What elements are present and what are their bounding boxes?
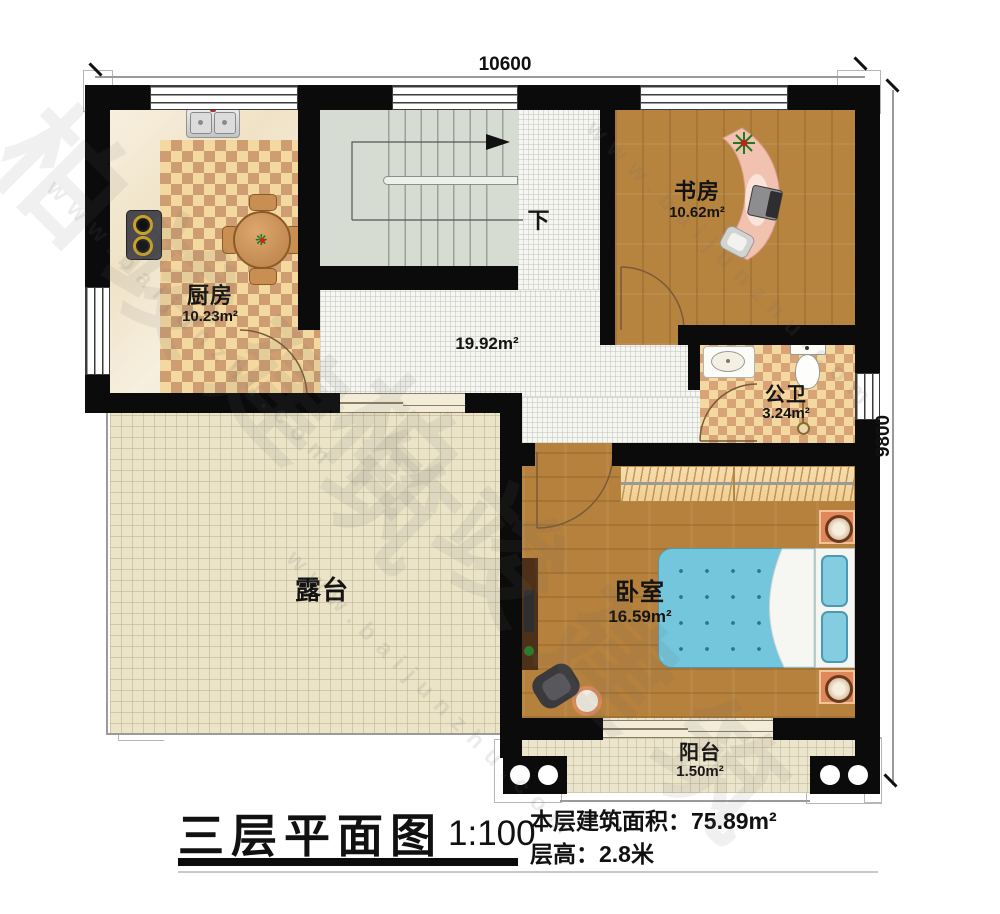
- wall-segment: [600, 325, 615, 345]
- wall-segment: [518, 85, 640, 110]
- column: [510, 765, 530, 785]
- pillow: [821, 611, 848, 663]
- plant-icon: [524, 646, 534, 656]
- right-dimension-label: 9800: [873, 404, 895, 468]
- floor-drain: [797, 422, 810, 435]
- floor-plan: ❋: [0, 0, 1000, 914]
- balcony-parapet: [560, 800, 810, 802]
- title-underline-thin: [178, 871, 878, 873]
- wall-segment: [688, 345, 700, 390]
- terrace-label: 露台: [262, 576, 382, 605]
- toilet-button: [805, 346, 809, 350]
- lamp-icon: [825, 675, 853, 703]
- sink-drain: [222, 120, 227, 125]
- floor-area-row: 本层建筑面积：75.89m²: [530, 805, 777, 838]
- hallway-floor: [518, 110, 600, 290]
- wall-segment: [500, 718, 603, 740]
- dimension-tick: [883, 773, 897, 787]
- room-name: 露台: [262, 576, 382, 605]
- wall-segment: [678, 325, 855, 345]
- room-name: 书房: [637, 180, 757, 205]
- window: [392, 85, 518, 110]
- room-name: 阳台: [640, 742, 760, 764]
- room-area: 1.50m²: [640, 764, 760, 781]
- dining-chair: [249, 194, 277, 211]
- room-area: 3.24m²: [726, 406, 846, 423]
- column: [820, 765, 840, 785]
- bedroom-label: 卧室 16.59m²: [580, 580, 700, 626]
- wall-segment: [612, 443, 855, 466]
- floor-height-value: 2.8米: [599, 841, 654, 867]
- stairs-direction-label: 下: [524, 209, 554, 234]
- floor-area-value: 75.89m²: [691, 808, 777, 834]
- wall-segment: [855, 420, 880, 758]
- floor-height-label: 层高：: [530, 841, 599, 867]
- monitor-icon: [524, 590, 534, 632]
- pillow: [821, 555, 848, 607]
- wall-segment: [85, 85, 110, 287]
- balcony-sliding-door: [603, 720, 773, 738]
- basin-drain: [726, 359, 730, 363]
- wall-segment: [600, 110, 615, 345]
- wall-segment: [855, 85, 880, 373]
- floor-height-row: 层高：2.8米: [530, 838, 777, 871]
- gas-stove: [126, 210, 162, 260]
- lamp-icon: [825, 515, 853, 543]
- bathroom-label: 公卫 3.24m²: [726, 384, 846, 423]
- wall-segment: [85, 393, 340, 413]
- wall-segment: [298, 85, 392, 110]
- wall-segment: [298, 110, 320, 268]
- room-area: 19.92m²: [427, 334, 547, 353]
- stool: [572, 686, 602, 716]
- column: [538, 765, 558, 785]
- dining-chair: [249, 268, 277, 285]
- terrace-sliding-door: [340, 393, 465, 413]
- stairs-down-text: 下: [524, 209, 554, 234]
- wardrobe-divider: [733, 467, 735, 501]
- title-underline: [178, 858, 518, 866]
- nightstand: [819, 670, 855, 704]
- stair-treads-upper: [388, 110, 518, 176]
- study-label: 书房 10.62m²: [637, 180, 757, 221]
- stair-rail: [383, 176, 518, 185]
- room-area: 10.62m²: [637, 205, 757, 222]
- room-area: 16.59m²: [580, 607, 700, 626]
- window: [85, 287, 110, 375]
- stove-burner: [133, 215, 153, 235]
- terrace-parapet: [106, 413, 108, 735]
- room-area: 10.23m²: [150, 309, 270, 326]
- nightstand: [819, 510, 855, 544]
- balcony-pillar: [810, 756, 880, 794]
- wardrobe-rail: [621, 482, 854, 485]
- room-name: 卧室: [580, 580, 700, 607]
- wall-segment: [305, 266, 518, 290]
- room-name: 公卫: [726, 384, 846, 406]
- table-flower-icon: [260, 238, 265, 243]
- terrace-parapet: [106, 733, 507, 735]
- terrace-floor: [110, 413, 505, 735]
- top-dimension-label: 10600: [455, 54, 555, 76]
- dimension-tick: [853, 56, 867, 70]
- window: [640, 85, 788, 110]
- drawing-scale: 1:100: [448, 814, 536, 854]
- room-name: 厨房: [150, 284, 270, 309]
- stove-burner: [133, 236, 153, 256]
- top-dimension-line: [95, 76, 865, 78]
- wall-segment: [773, 718, 880, 740]
- hallway-area-label: 19.92m²: [427, 334, 547, 353]
- wardrobe: [620, 466, 855, 502]
- wash-basin: [703, 346, 755, 378]
- drawing-title: 三层平面图: [178, 800, 443, 866]
- kitchen-sink: [186, 108, 240, 138]
- dining-table: ❋: [233, 211, 291, 269]
- wall-segment: [500, 393, 522, 758]
- kitchen-label: 厨房 10.23m²: [150, 284, 270, 325]
- balcony-label: 阳台 1.50m²: [640, 742, 760, 781]
- balcony-pillar: [503, 756, 567, 794]
- sink-basin: [214, 112, 236, 134]
- window: [150, 85, 298, 110]
- floor-info: 本层建筑面积：75.89m² 层高：2.8米: [530, 805, 777, 871]
- hallway-floor: [522, 397, 700, 448]
- study-floor: [615, 110, 855, 345]
- kitchen-floor: [160, 140, 320, 393]
- sink-basin: [190, 112, 212, 134]
- stair-treads-lower: [388, 185, 500, 266]
- floor-area-label: 本层建筑面积：: [530, 808, 691, 834]
- column: [848, 765, 868, 785]
- sink-drain: [198, 120, 203, 125]
